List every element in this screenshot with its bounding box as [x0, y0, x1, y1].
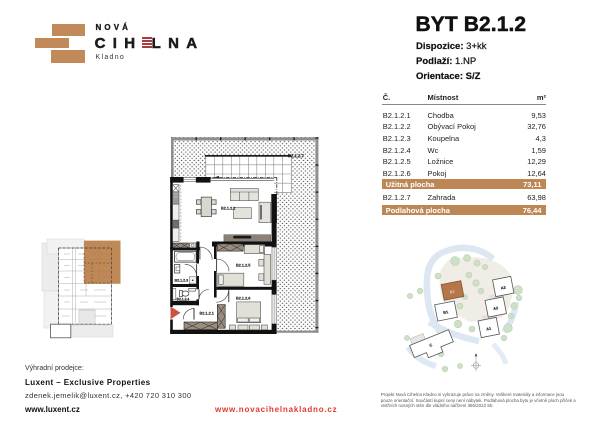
svg-text:B2.1.2.2: B2.1.2.2	[221, 207, 235, 211]
svg-text:B2.1.2.3: B2.1.2.3	[174, 279, 188, 283]
svg-text:B2.1.2.4: B2.1.2.4	[176, 297, 189, 301]
svg-text:B2.1.2.1: B2.1.2.1	[199, 312, 213, 316]
svg-text:B2.1.2.7: B2.1.2.7	[288, 153, 305, 158]
svg-text:B2.1.2.6: B2.1.2.6	[236, 297, 250, 301]
svg-text:B2.1.2.5: B2.1.2.5	[236, 264, 250, 268]
